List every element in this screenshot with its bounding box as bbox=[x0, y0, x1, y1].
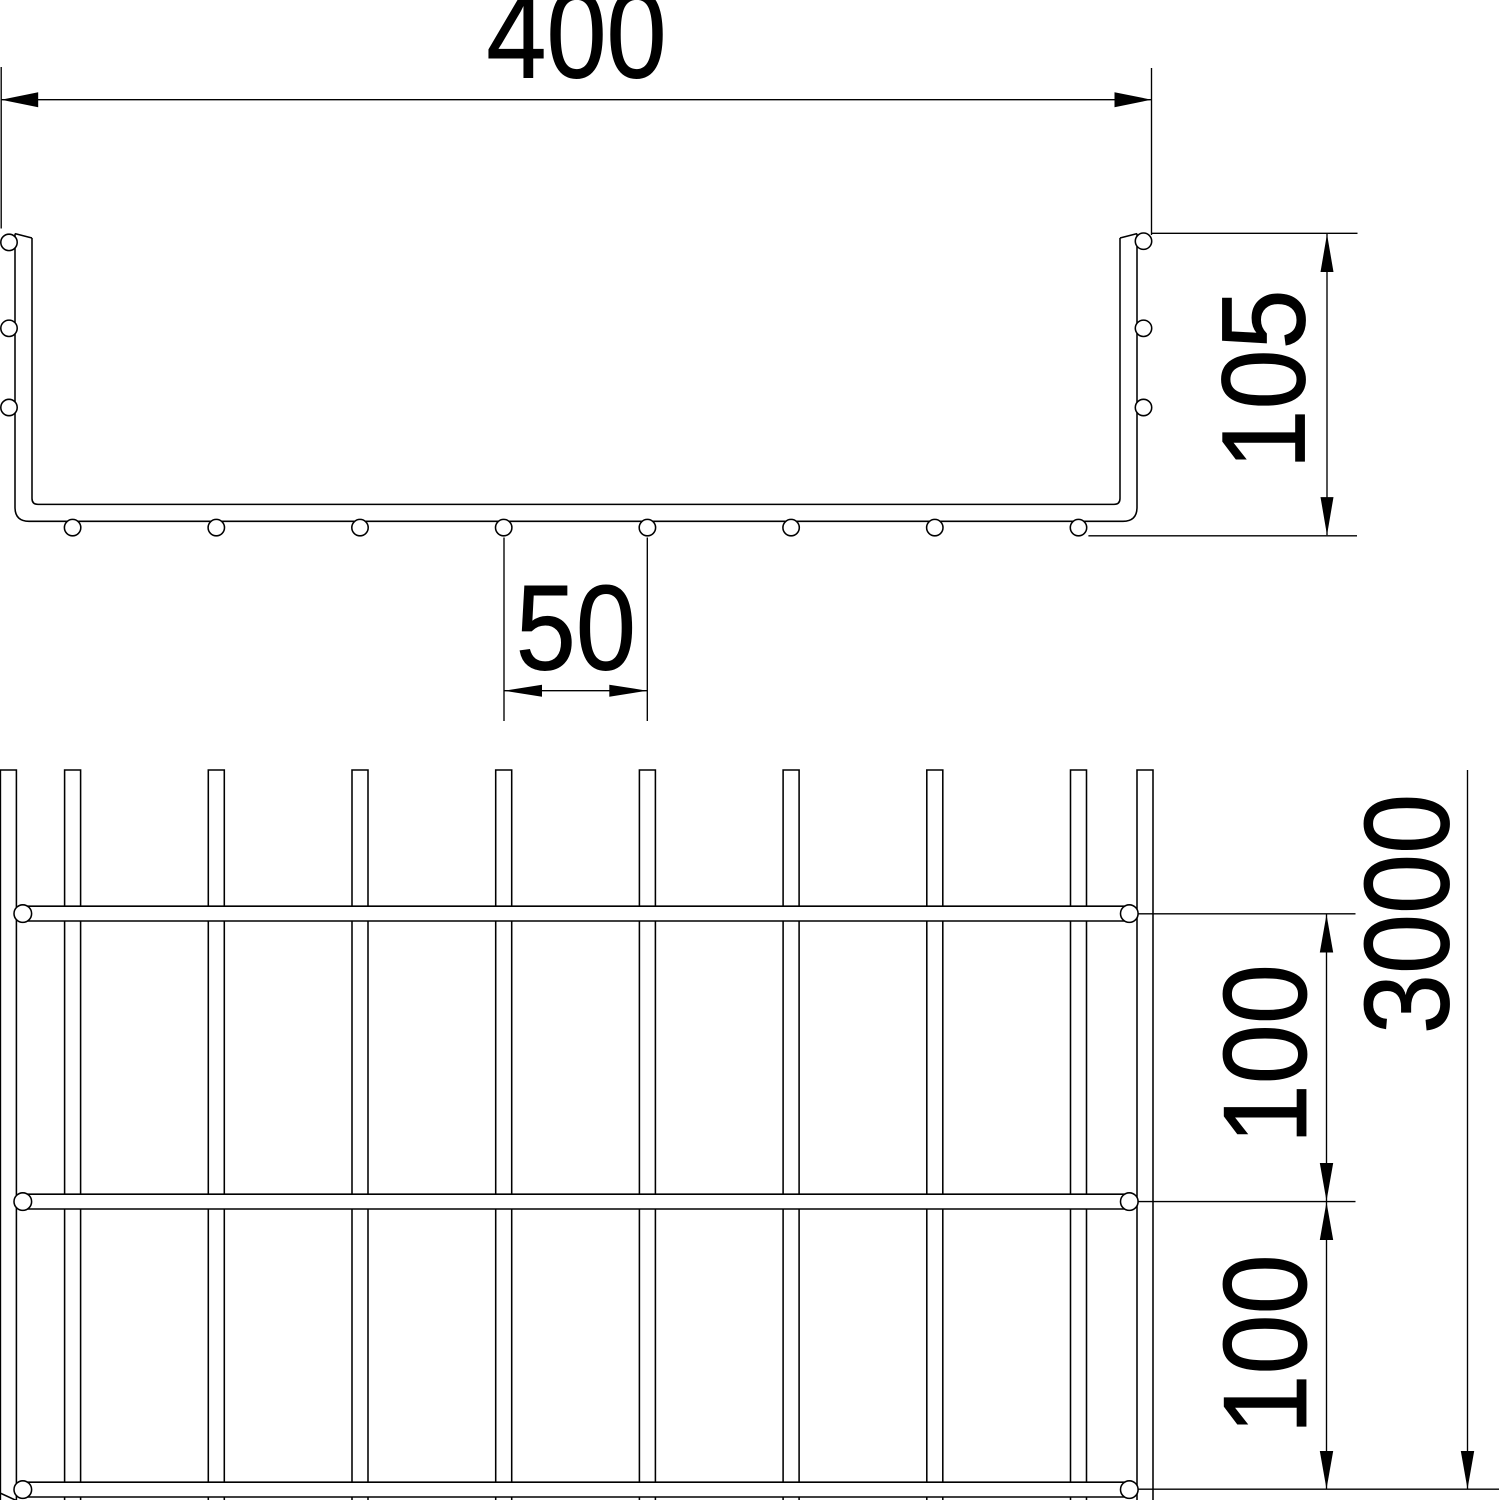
svg-text:50: 50 bbox=[516, 561, 636, 696]
svg-text:100: 100 bbox=[1199, 1254, 1332, 1434]
svg-text:400: 400 bbox=[486, 0, 666, 104]
svg-text:105: 105 bbox=[1198, 289, 1331, 469]
svg-text:100: 100 bbox=[1199, 964, 1332, 1144]
svg-text:3000: 3000 bbox=[1340, 794, 1475, 1034]
